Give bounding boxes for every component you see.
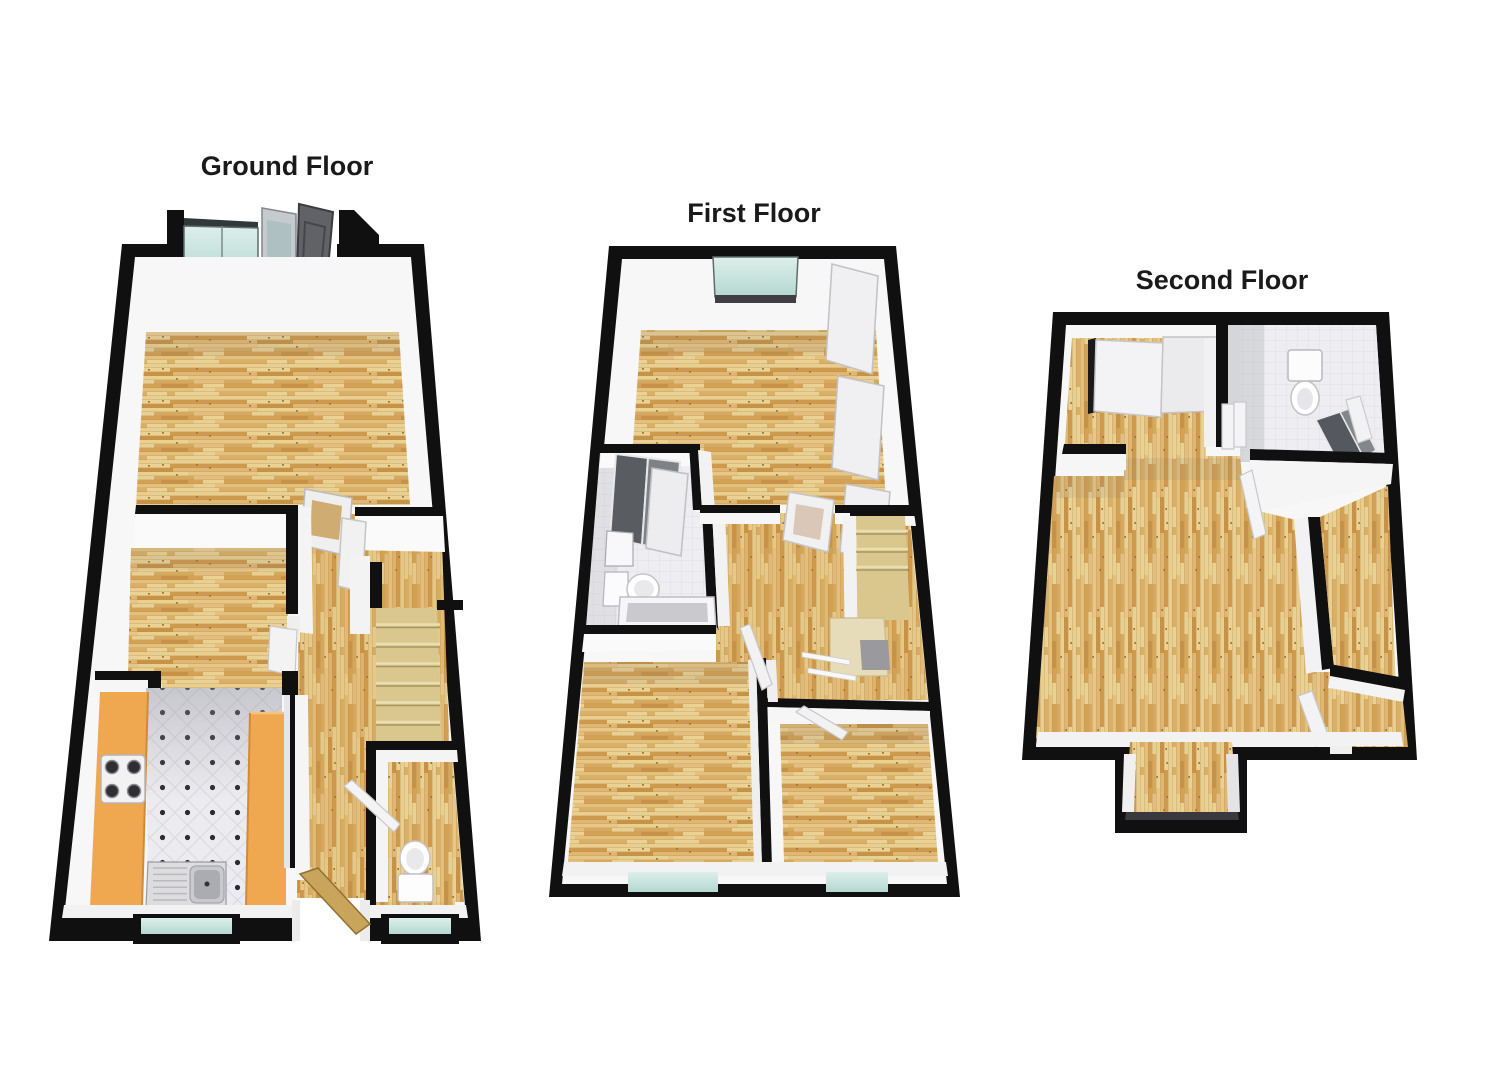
svg-text:Second Floor: Second Floor [1136,265,1309,295]
svg-text:First Floor: First Floor [687,198,821,228]
svg-text:Ground Floor: Ground Floor [201,151,374,181]
